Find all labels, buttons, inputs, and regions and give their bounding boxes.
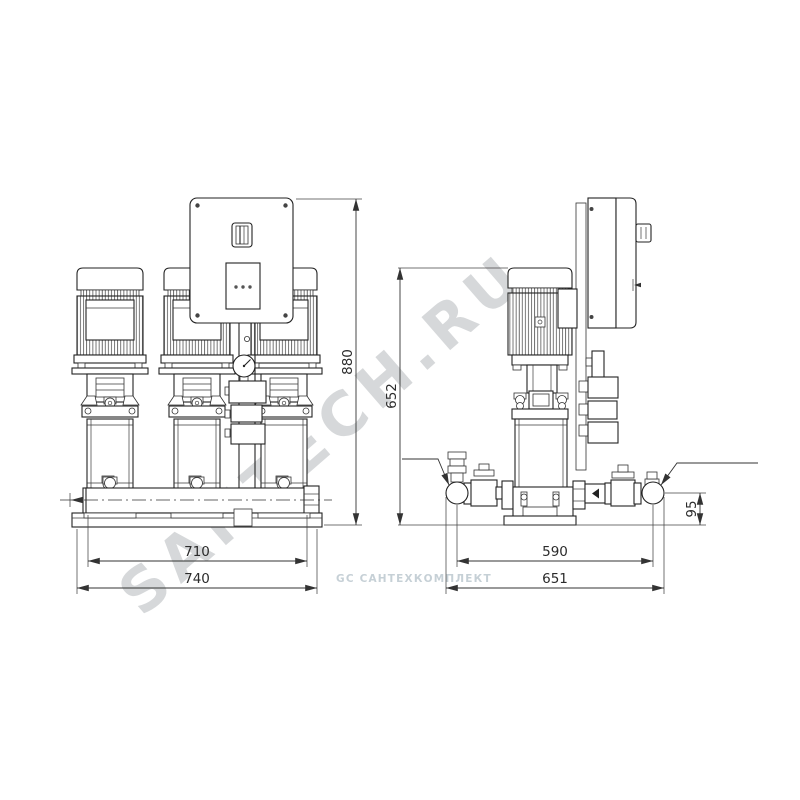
control-cabinet-front (190, 198, 293, 323)
ball-valve-right (611, 480, 635, 506)
dim-label-710: 710 (184, 544, 210, 560)
pump-base-side (504, 487, 576, 525)
dim-label-590: 590 (542, 544, 568, 560)
pressure-switch-1 (229, 381, 266, 403)
dim-label-651: 651 (542, 571, 568, 587)
dim-label-95: 95 (684, 500, 700, 517)
motor-side (508, 268, 577, 355)
ball-valve-left (471, 480, 497, 506)
dim-label-880: 880 (340, 349, 356, 375)
dimensional-drawing-page: SANTECH.RU GC САНТЕХКОМПЛЕКТ (0, 0, 800, 800)
booster-set-dimensional-drawing: SANTECH.RU GC САНТЕХКОМПЛЕКТ (0, 0, 800, 800)
suction-port-flange (446, 482, 468, 504)
pressure-switch-2 (231, 405, 262, 422)
dim-label-740: 740 (184, 571, 210, 587)
pressure-switch-3 (231, 424, 265, 444)
dim-label-652: 652 (384, 383, 400, 409)
display-panel (226, 263, 260, 309)
cable-gland-side-icon (636, 224, 651, 242)
discharge-port-flange (642, 482, 664, 504)
cable-gland-icon (232, 223, 252, 247)
watermark-company: GC САНТЕХКОМПЛЕКТ (336, 573, 492, 585)
